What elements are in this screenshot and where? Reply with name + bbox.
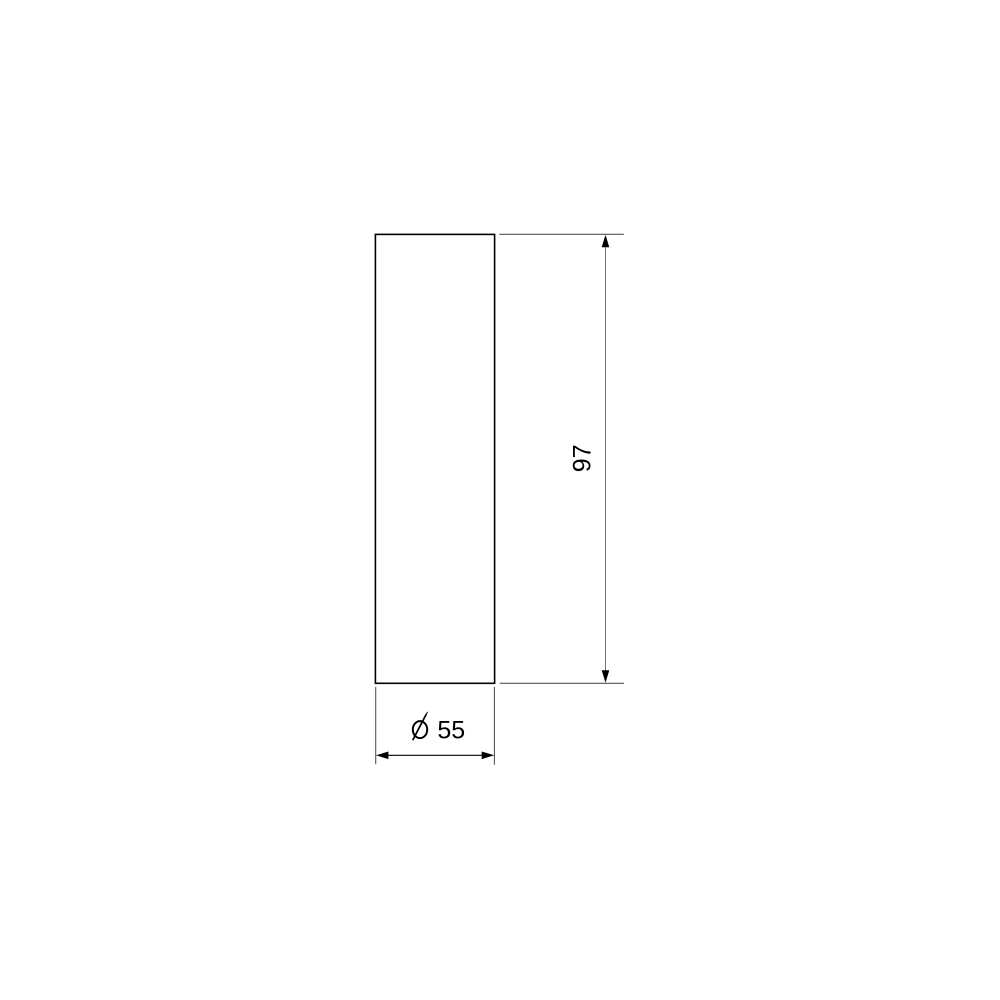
svg-text:97: 97	[569, 444, 597, 472]
svg-text:55: 55	[437, 717, 465, 745]
